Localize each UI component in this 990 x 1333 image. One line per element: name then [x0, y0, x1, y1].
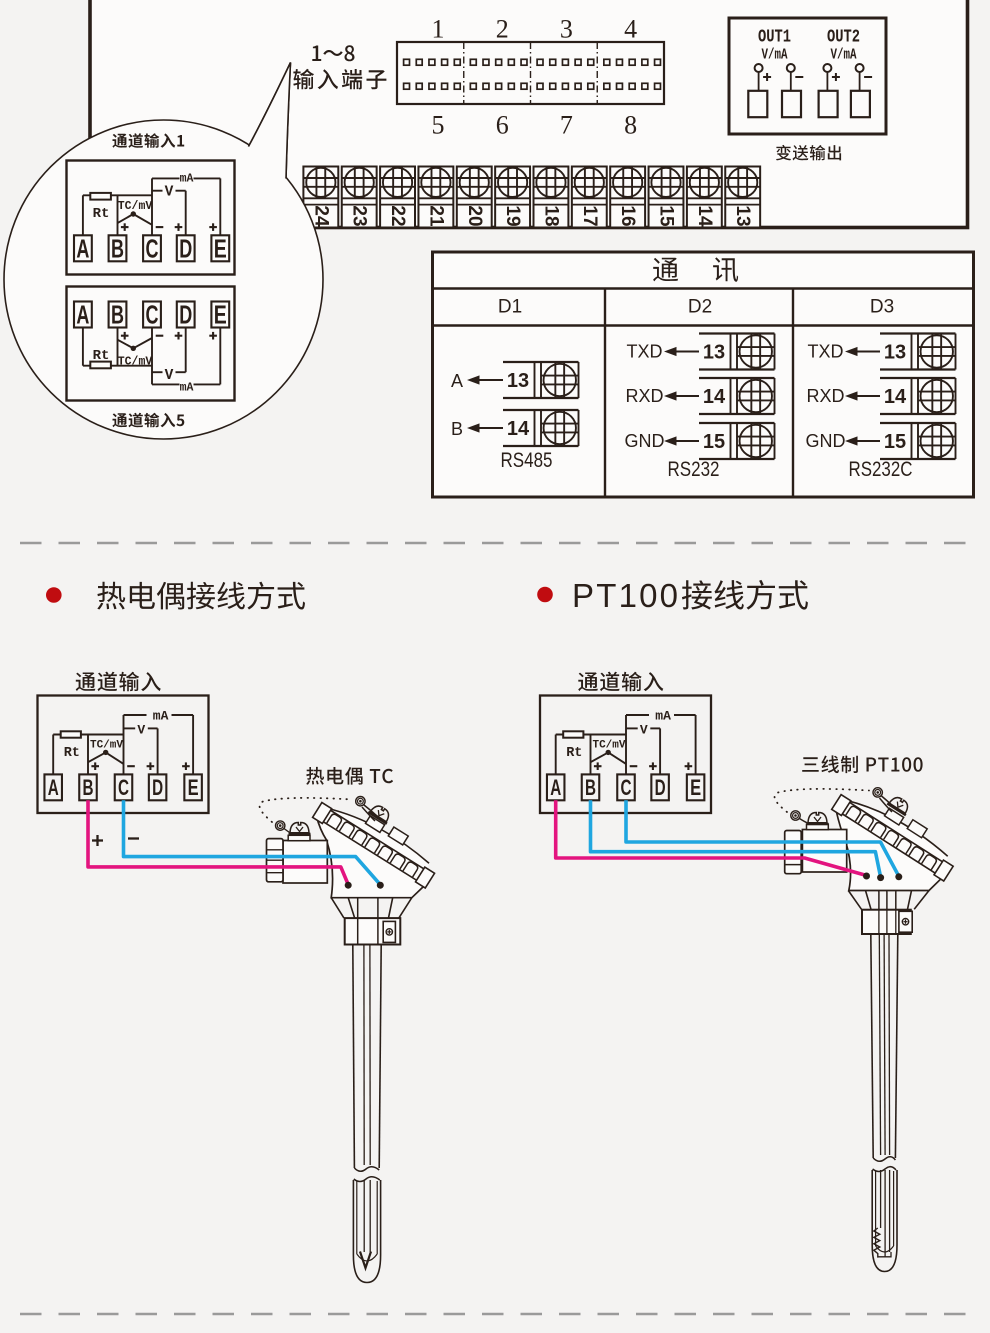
svg-text:15: 15	[656, 205, 677, 227]
svg-text:B: B	[111, 233, 124, 263]
svg-text:14: 14	[703, 386, 726, 408]
svg-text:4: 4	[624, 15, 637, 44]
svg-text:PT100: PT100	[572, 577, 680, 614]
svg-text:D1: D1	[498, 297, 522, 318]
svg-text:RS485: RS485	[501, 449, 553, 472]
svg-text:D: D	[179, 233, 192, 263]
svg-text:OUT1: OUT1	[758, 28, 791, 48]
svg-text:17: 17	[579, 205, 600, 226]
svg-text:RXD: RXD	[806, 386, 844, 406]
svg-text:E: E	[690, 775, 701, 800]
svg-text:13: 13	[884, 342, 906, 364]
svg-text:14: 14	[884, 386, 907, 408]
svg-text:TC/mV: TC/mV	[118, 200, 153, 213]
svg-text:19: 19	[502, 205, 523, 226]
svg-text:1: 1	[432, 15, 445, 44]
svg-text:TC/mV: TC/mV	[90, 740, 123, 752]
svg-text:23: 23	[349, 205, 370, 226]
svg-text:14: 14	[507, 418, 530, 440]
svg-text:A: A	[76, 233, 89, 263]
svg-text:V: V	[165, 368, 174, 384]
svg-text:V/mA: V/mA	[762, 48, 788, 64]
svg-text:mA: mA	[180, 382, 194, 395]
svg-text:2: 2	[496, 15, 509, 44]
svg-text:TXD: TXD	[627, 342, 663, 362]
svg-text:20: 20	[464, 205, 485, 226]
svg-text:A: A	[76, 300, 89, 330]
svg-text:GND: GND	[625, 431, 665, 451]
svg-text:8: 8	[624, 111, 637, 140]
svg-text:TC/mV: TC/mV	[592, 740, 625, 752]
svg-text:V: V	[165, 185, 174, 201]
svg-text:TC/mV: TC/mV	[118, 356, 153, 369]
svg-text:Rt: Rt	[93, 206, 110, 222]
svg-text:Rt: Rt	[64, 746, 80, 761]
svg-text:mA: mA	[655, 709, 671, 724]
svg-text:D2: D2	[688, 297, 712, 318]
svg-text:7: 7	[560, 111, 573, 140]
svg-text:mA: mA	[180, 173, 194, 186]
svg-text:Rt: Rt	[566, 746, 582, 761]
svg-text:6: 6	[496, 111, 509, 140]
svg-text:B: B	[451, 419, 463, 439]
svg-text:RS232C: RS232C	[849, 458, 913, 481]
svg-text:D: D	[655, 775, 666, 800]
svg-text:V: V	[640, 723, 648, 738]
svg-text:TXD: TXD	[808, 342, 844, 362]
svg-text:13: 13	[732, 205, 753, 226]
svg-text:E: E	[188, 775, 199, 800]
svg-text:B: B	[585, 775, 596, 800]
svg-text:D: D	[179, 300, 192, 330]
svg-text:15: 15	[884, 431, 906, 453]
svg-text:D3: D3	[870, 297, 894, 318]
svg-text:C: C	[118, 775, 129, 800]
svg-text:Rt: Rt	[93, 348, 110, 364]
svg-text:V/mA: V/mA	[831, 48, 857, 64]
svg-text:OUT2: OUT2	[827, 28, 860, 48]
svg-text:15: 15	[703, 431, 725, 453]
svg-text:V: V	[137, 723, 145, 738]
svg-text:RS232: RS232	[668, 458, 720, 481]
svg-text:GND: GND	[806, 431, 846, 451]
svg-text:B: B	[83, 775, 94, 800]
svg-text:C: C	[621, 775, 632, 800]
svg-text:14: 14	[694, 205, 715, 227]
svg-text:E: E	[214, 233, 227, 263]
svg-text:C: C	[146, 300, 159, 330]
svg-text:5: 5	[432, 111, 445, 140]
svg-text:RXD: RXD	[625, 386, 663, 406]
svg-text:E: E	[214, 300, 227, 330]
svg-text:D: D	[152, 775, 163, 800]
svg-text:3: 3	[560, 15, 573, 44]
svg-text:A: A	[550, 775, 561, 800]
svg-text:16: 16	[617, 205, 638, 226]
svg-text:18: 18	[540, 205, 561, 226]
svg-text:13: 13	[703, 342, 725, 364]
svg-text:22: 22	[387, 205, 408, 226]
svg-text:21: 21	[425, 205, 446, 227]
svg-text:mA: mA	[153, 709, 169, 724]
svg-text:13: 13	[507, 370, 529, 392]
svg-text:A: A	[48, 775, 59, 800]
svg-text:A: A	[451, 371, 463, 391]
svg-text:B: B	[111, 300, 124, 330]
svg-text:C: C	[146, 233, 159, 263]
